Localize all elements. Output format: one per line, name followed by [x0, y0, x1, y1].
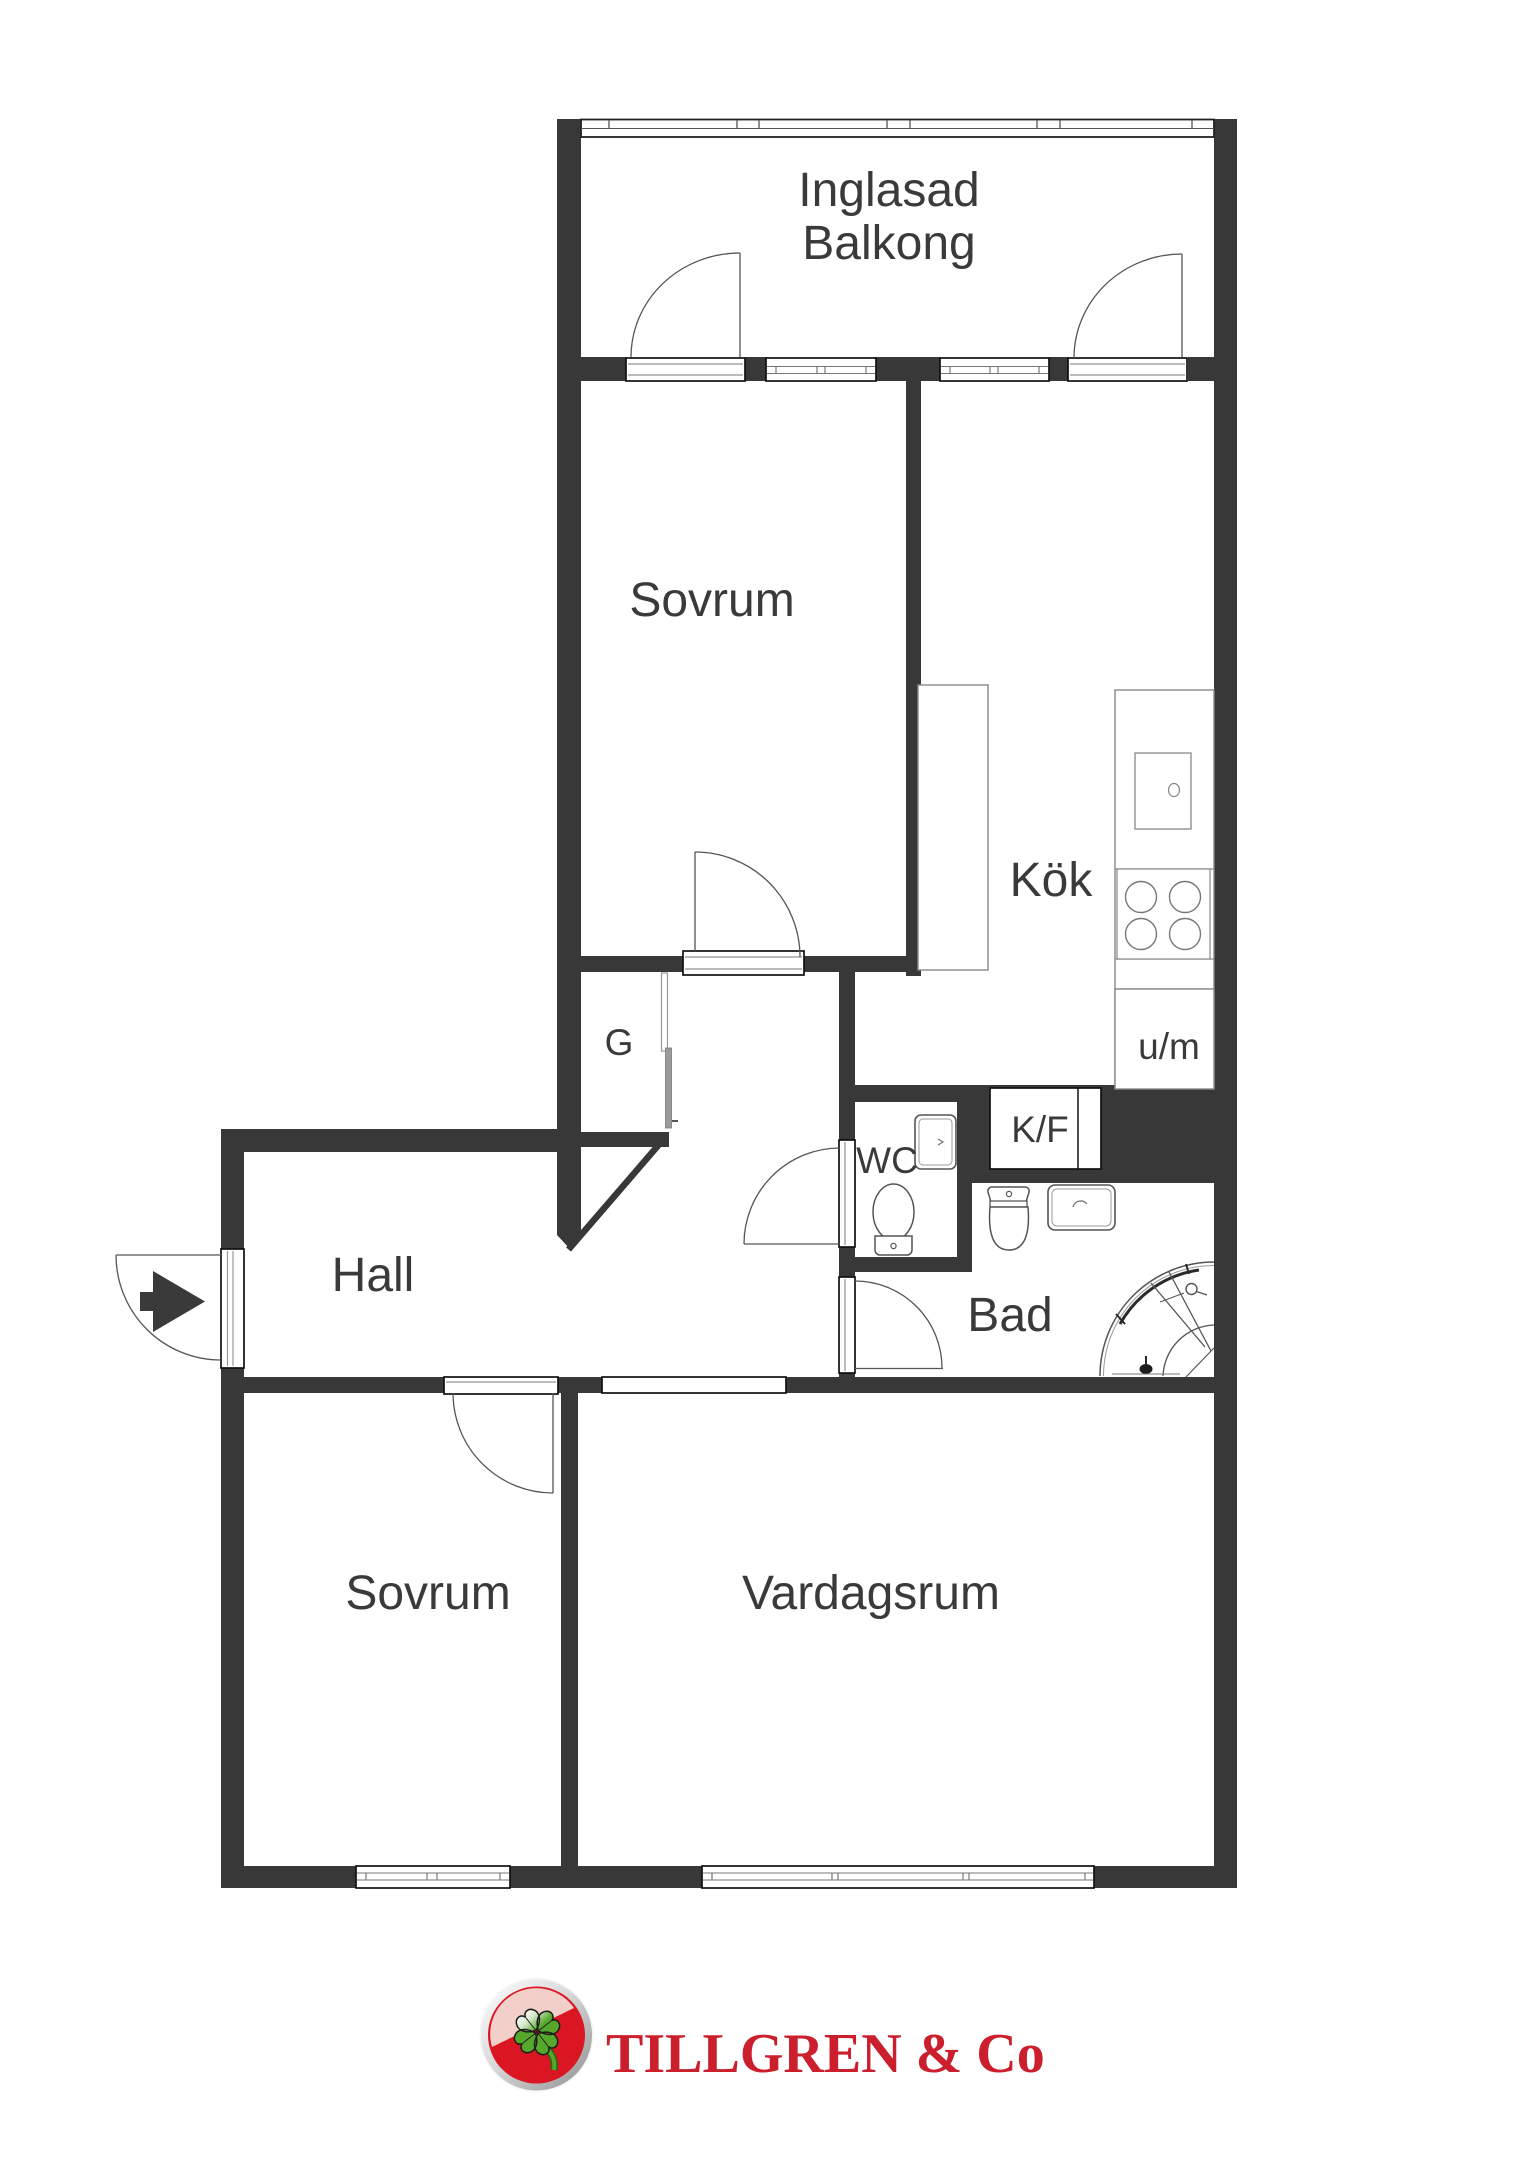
svg-text:Sovrum: Sovrum: [345, 1567, 510, 1620]
svg-text:Kök: Kök: [1010, 854, 1094, 907]
svg-text:WC: WC: [856, 1140, 918, 1181]
svg-text:TILLGREN & Co: TILLGREN & Co: [606, 2023, 1045, 2085]
svg-text:K/F: K/F: [1011, 1109, 1069, 1150]
svg-text:Hall: Hall: [332, 1249, 415, 1302]
svg-text:Sovrum: Sovrum: [629, 574, 794, 627]
svg-text:Inglasad: Inglasad: [798, 164, 979, 217]
svg-text:u/m: u/m: [1138, 1026, 1200, 1067]
svg-text:Vardagsrum: Vardagsrum: [742, 1567, 1000, 1620]
svg-text:G: G: [605, 1022, 634, 1063]
svg-text:Balkong: Balkong: [802, 217, 975, 270]
svg-text:Bad: Bad: [967, 1289, 1052, 1342]
